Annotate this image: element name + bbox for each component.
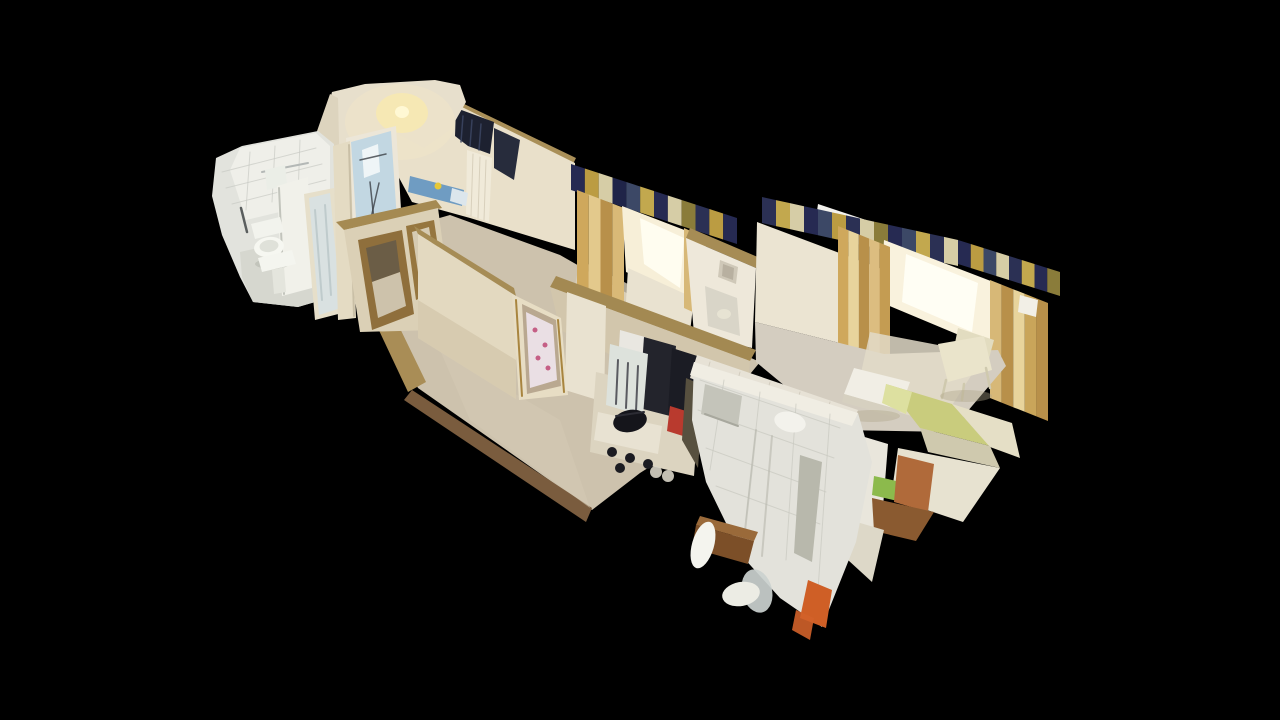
living-valance-right [971,244,984,272]
shoes [615,463,625,473]
bedroom-curtain-left [589,195,601,304]
mirror-reflection-chair [717,309,731,319]
bedroom-valance [626,182,640,213]
living-valance-left [944,237,958,266]
fragment-terracotta [894,455,934,512]
living-valance-right [958,240,971,268]
chair-shadow [940,390,992,402]
living-curtain-right [1002,285,1014,408]
mirror-towel-reflection [362,144,380,178]
hall-lamp [395,106,409,118]
white-shoes [662,470,674,482]
bedroom-valance [709,209,723,240]
bedroom-valance [682,200,696,231]
living-valance-right [1047,268,1060,296]
bedroom-curtain-left [612,204,624,313]
living-valance-left [776,200,790,229]
living-valance-left [804,206,818,235]
bedroom-valance [640,187,654,218]
pink-bed-floral-dots [543,343,548,348]
bedroom-valance [613,178,627,209]
toy-duck [435,183,442,190]
living-valance-right [1009,256,1022,284]
living-valance-left [762,197,776,226]
living-valance-left [818,209,832,238]
white-shoes [650,466,662,478]
dollhouse-scene[interactable] [0,0,1280,720]
sink-pedestal [272,267,286,294]
bedroom-valance [599,173,613,204]
pink-bed-floral-dots [546,366,551,371]
shoes [625,453,635,463]
shoes [643,459,653,469]
living-curtain-right [1036,298,1048,421]
bedroom-valance [668,196,682,227]
pink-bed-floral-dots [536,356,541,361]
living-valance-right [996,252,1009,280]
pink-bed-floral-dots [533,328,538,333]
living-valance-right [984,248,997,276]
bedroom-valance [654,191,668,222]
bedroom-curtain-left [577,190,589,299]
bedroom-valance [723,214,737,245]
viewer-stage[interactable] [0,0,1280,720]
bedroom-valance [696,205,710,236]
living-valance-right [1022,260,1035,288]
shoes [607,447,617,457]
living-valance-right [1035,264,1048,292]
bedroom-valance [571,164,585,195]
bedroom-curtain-left [601,199,613,308]
living-valance-left [790,203,804,232]
